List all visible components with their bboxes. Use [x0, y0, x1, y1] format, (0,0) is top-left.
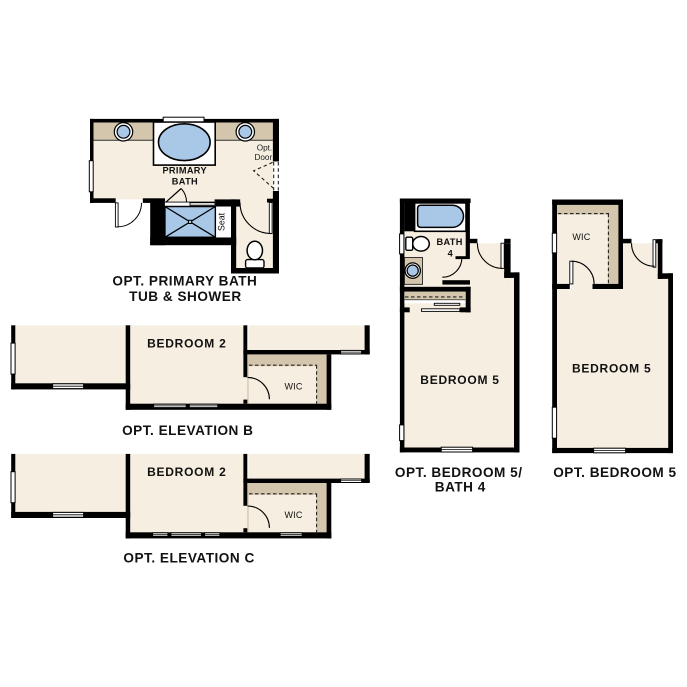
- svg-text:BATH 4: BATH 4: [435, 479, 486, 494]
- svg-text:OPT. BEDROOM 5/: OPT. BEDROOM 5/: [395, 465, 523, 480]
- svg-text:OPT. PRIMARY BATH: OPT. PRIMARY BATH: [112, 274, 257, 289]
- svg-text:BATH: BATH: [172, 176, 198, 186]
- svg-text:WIC: WIC: [284, 510, 302, 520]
- svg-text:Seat: Seat: [216, 212, 226, 231]
- svg-text:Door: Door: [254, 153, 272, 162]
- svg-text:WIC: WIC: [572, 232, 590, 242]
- svg-text:4: 4: [448, 248, 454, 258]
- svg-text:WIC: WIC: [284, 382, 302, 392]
- svg-text:TUB & SHOWER: TUB & SHOWER: [129, 289, 241, 304]
- svg-text:BEDROOM 2: BEDROOM 2: [147, 465, 226, 479]
- svg-text:OPT. ELEVATION C: OPT. ELEVATION C: [123, 550, 254, 565]
- svg-text:PRIMARY: PRIMARY: [162, 165, 206, 175]
- svg-text:BATH: BATH: [436, 237, 462, 247]
- svg-text:OPT. BEDROOM 5: OPT. BEDROOM 5: [553, 465, 676, 480]
- svg-text:BEDROOM 5: BEDROOM 5: [420, 373, 499, 387]
- svg-text:BEDROOM 2: BEDROOM 2: [147, 336, 226, 350]
- svg-text:BEDROOM 5: BEDROOM 5: [572, 362, 651, 376]
- svg-text:OPT. ELEVATION B: OPT. ELEVATION B: [122, 423, 253, 438]
- svg-text:Opt.: Opt.: [257, 143, 272, 152]
